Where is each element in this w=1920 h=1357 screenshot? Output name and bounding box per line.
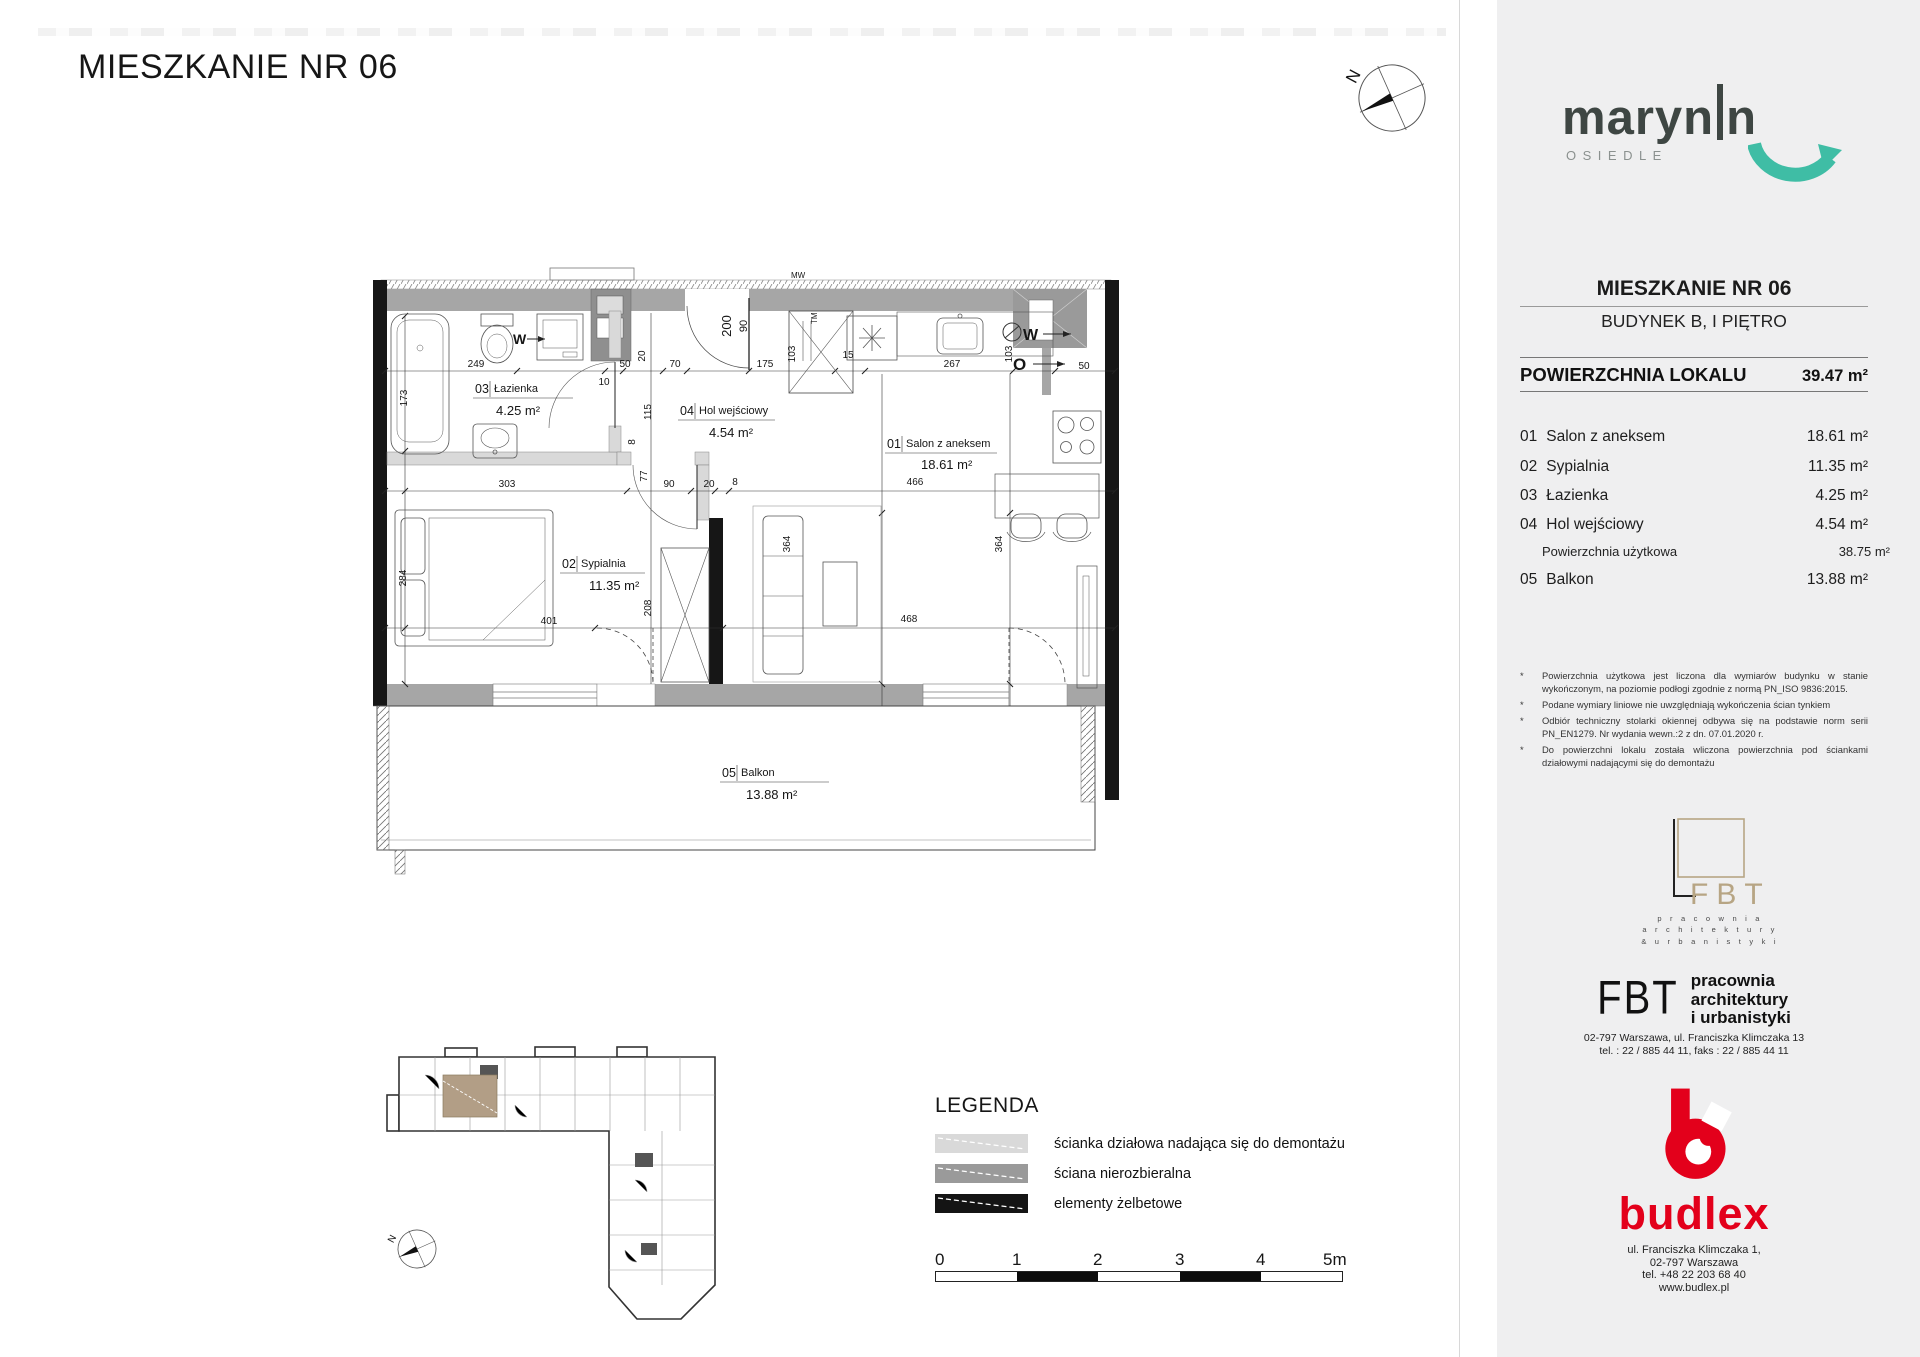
room-area: 38.75 m² [1839,544,1890,559]
budlex-logo-block: budlex ul. Franciszka Klimczaka 1, 02-79… [1520,1085,1868,1295]
room-no: 03 [1520,487,1537,505]
page-title: MIESZKANIE NR 06 [78,48,398,87]
room-name: Sypialnia [1546,458,1609,476]
svg-text:90: 90 [738,320,750,332]
washer-mark: W [513,331,527,347]
washing-machine [537,314,583,360]
svg-text:115: 115 [643,404,654,420]
svg-text:50: 50 [619,359,631,370]
fbt-tagline: p r a c o w n i a [1640,913,1780,924]
snowflake-icon [859,325,885,351]
svg-text:03: 03 [475,382,489,396]
room-label-hol: 04 Hol wejściowy 4.54 m² [678,403,775,440]
scale-tick-label: 2 [1093,1250,1102,1270]
svg-text:364: 364 [782,535,793,552]
dimension-lines [385,313,1115,706]
footnote: Powierzchnia użytkowa jest liczona dla w… [1542,670,1868,696]
tv-cabinet [1077,566,1097,688]
budlex-address: 02-797 Warszawa [1520,1257,1868,1270]
area-header-value: 39.47 m² [1802,367,1868,386]
svg-text:200: 200 [719,315,734,337]
svg-text:04: 04 [680,404,694,418]
partitions [387,311,709,520]
room-row: 01Salon z aneksem 18.61 m² [1520,428,1868,446]
overview-highlighted-unit [443,1075,497,1117]
scale-bar-segment [1180,1272,1261,1281]
room-area: 11.35 m² [1808,458,1868,476]
north-label: N [1342,66,1365,86]
north-compass-mini: N [386,1223,443,1276]
room-no: 05 [1520,571,1537,589]
building-overview-plan: N [385,1035,730,1325]
legend-row: elementy żelbetowe [935,1194,1345,1213]
unit-title: MIESZKANIE NR 06 [1520,277,1868,301]
fbt-square-logo: FBT p r a c o w n i a a r c h i t e k t … [1640,816,1780,946]
bottom-wall-band [373,684,1105,706]
svg-text:Balkon: Balkon [741,767,775,779]
tm-mark: TM [810,312,819,324]
fbt-letters: FBT [1690,878,1771,908]
room-row-subtotal: Powierzchnia użytkowa 38.75 m² [1520,544,1890,559]
scale-bar-track [935,1271,1343,1282]
svg-text:8: 8 [627,439,638,445]
legend-label: elementy żelbetowe [1054,1196,1182,1212]
svg-text:Łazienka: Łazienka [494,383,539,395]
svg-text:70: 70 [669,359,681,370]
svg-text:303: 303 [499,479,516,490]
svg-text:Sypialnia: Sypialnia [581,558,627,570]
fridge [847,316,897,360]
legend-row: ścianka działowa nadająca się do demonta… [935,1134,1345,1153]
fbt-logo-icon: FBT [1640,816,1780,908]
svg-text:Salon z aneksem: Salon z aneksem [906,438,990,450]
svg-text:50: 50 [1078,361,1090,372]
divider [1520,357,1868,358]
fbt-phones: tel. : 22 / 885 44 11, faks : 22 / 885 4… [1520,1045,1868,1058]
area-header: POWIERZCHNIA LOKALU 39.47 m² [1520,364,1868,386]
area-header-label: POWIERZCHNIA LOKALU [1520,364,1746,386]
dining-table [995,474,1099,542]
scale-bar-segment [1017,1272,1098,1281]
mw-mark: MW [791,271,806,280]
legend-row: ściana nierozbieralna [935,1164,1345,1183]
north-mini-label: N [386,1233,399,1245]
fbt-address-block: FBT pracownia architektury i urbanistyki… [1520,972,1868,1058]
svg-text:15: 15 [842,350,854,361]
fixtures [391,311,1101,688]
footnote: Do powierzchni lokalu została wliczona p… [1542,744,1868,770]
room-row: 04Hol wejściowy 4.54 m² [1520,516,1868,534]
svg-text:20: 20 [637,350,648,362]
page-divider [1459,0,1460,1357]
svg-text:18.61 m²: 18.61 m² [921,457,973,472]
brand-part1: maryn [1562,91,1714,145]
svg-text:208: 208 [643,599,654,616]
toilet [481,314,513,363]
room-area: 13.88 m² [1807,571,1868,589]
room-label-salon: 01 Salon z aneksem 18.61 m² [885,436,997,472]
divider [1520,306,1868,307]
legend-swatch-wall [935,1164,1028,1183]
room-area: 4.54 m² [1815,516,1868,534]
svg-text:364: 364 [994,535,1005,552]
room-name: Łazienka [1546,487,1608,505]
room-no: 02 [1520,458,1537,476]
scale-bar: 0 1 2 3 4 5m [935,1250,1343,1286]
svg-text:11.35 m²: 11.35 m² [589,578,640,593]
svg-text:02: 02 [562,557,576,571]
room-no: 04 [1520,516,1537,534]
fbt-tagline: & u r b a n i s t y k i [1640,936,1780,947]
room-area: 18.61 m² [1807,428,1868,446]
legend-swatch-partition [935,1134,1028,1153]
sofa-set [753,506,881,682]
svg-text:10: 10 [598,377,610,388]
room-row: 02Sypialnia 11.35 m² [1520,458,1868,476]
scale-tick-label: 3 [1175,1250,1184,1270]
room-row: 05Balkon 13.88 m² [1520,571,1868,589]
fbt-letters: FBT [1597,972,1679,1025]
svg-text:13.88 m²: 13.88 m² [746,787,798,802]
fbt-name-line: architektury [1691,991,1791,1010]
balcony [377,706,1095,874]
room-area: 4.25 m² [1815,487,1868,505]
divider [1520,391,1868,392]
svg-text:249: 249 [468,359,485,370]
svg-text:Hol wejściowy: Hol wejściowy [699,405,769,417]
fbt-tagline: a r c h i t e k t u r y [1640,924,1780,935]
fbt-name-line: i urbanistyki [1691,1009,1791,1028]
svg-text:284: 284 [398,569,409,586]
legend-label: ścianka działowa nadająca się do demonta… [1054,1136,1345,1152]
budlex-address: ul. Franciszka Klimczaka 1, [1520,1244,1868,1257]
floor-plan: MW TM W W O 01 Salon z aneksem 18.61 m² … [365,266,1135,876]
svg-text:103: 103 [787,345,798,362]
brand-wordmark: marynn [1562,84,1757,146]
room-no: 01 [1520,428,1537,446]
svg-text:173: 173 [399,389,410,406]
svg-text:4.25 m²: 4.25 m² [496,403,541,418]
room-label-lazienka: 03 Łazienka 4.25 m² [473,381,573,418]
north-compass: N [1340,52,1436,142]
vent-w-mark: W [1023,327,1039,344]
scale-tick-label: 0 [935,1250,944,1270]
scale-tick-label: 1 [1012,1250,1021,1270]
brand-letter-bar [1717,84,1723,140]
svg-text:468: 468 [901,614,918,625]
budlex-website: www.budlex.pl [1520,1282,1868,1295]
fbt-name-line: pracownia [1691,972,1791,991]
unit-subtitle: BUDYNEK B, I PIĘTRO [1520,311,1868,332]
scan-artifact-strip [38,28,1446,36]
fbt-address: 02-797 Warszawa, ul. Franciszka Klimczak… [1520,1032,1868,1045]
svg-text:267: 267 [944,359,961,370]
bathtub [391,314,449,454]
neighbor-shaft [550,268,634,280]
room-row: 03Łazienka 4.25 m² [1520,487,1868,505]
scale-tick-label: 4 [1256,1250,1265,1270]
scale-tick-label: 5m [1323,1250,1347,1270]
brand-logo: marynn OSIEDLE [1520,84,1868,164]
footnote: Odbiór techniczny stolarki okiennej odby… [1542,715,1868,741]
svg-text:01: 01 [887,437,901,451]
legend-swatch-concrete [935,1194,1028,1213]
bedroom-wardrobe [661,548,709,682]
legend-title: LEGENDA [935,1094,1345,1118]
svg-text:103: 103 [1004,345,1015,362]
room-name: Balkon [1546,571,1593,589]
room-name: Powierzchnia użytkowa [1542,544,1677,559]
room-name: Salon z aneksem [1546,428,1665,446]
svg-text:8: 8 [732,477,738,488]
room-label-sypialnia: 02 Sypialnia 11.35 m² [560,556,645,593]
north-arrow-icon [1360,93,1393,114]
budlex-mark-icon [1651,1085,1737,1181]
brand-swirl-icon [1748,136,1848,194]
svg-text:05: 05 [722,766,736,780]
cooktop [1053,411,1101,463]
room-name: Hol wejściowy [1546,516,1643,534]
svg-text:77: 77 [639,470,650,482]
budlex-phone: tel. +48 22 203 68 40 [1520,1269,1868,1282]
footnotes: *Powierzchnia użytkowa jest liczona dla … [1520,670,1868,773]
brand-subtitle: OSIEDLE [1566,148,1668,163]
legend: LEGENDA ścianka działowa nadająca się do… [935,1094,1345,1224]
svg-text:401: 401 [541,616,558,627]
svg-text:466: 466 [907,477,924,488]
budlex-wordmark: budlex [1520,1188,1868,1240]
insulation-strip [381,280,1111,289]
svg-text:20: 20 [703,479,715,490]
bed [395,510,553,646]
svg-text:175: 175 [757,359,774,370]
svg-text:90: 90 [663,479,675,490]
footnote: Podane wymiary liniowe nie uwzględniają … [1542,699,1830,712]
legend-label: ściana nierozbieralna [1054,1166,1191,1182]
svg-text:4.54 m²: 4.54 m² [709,425,754,440]
